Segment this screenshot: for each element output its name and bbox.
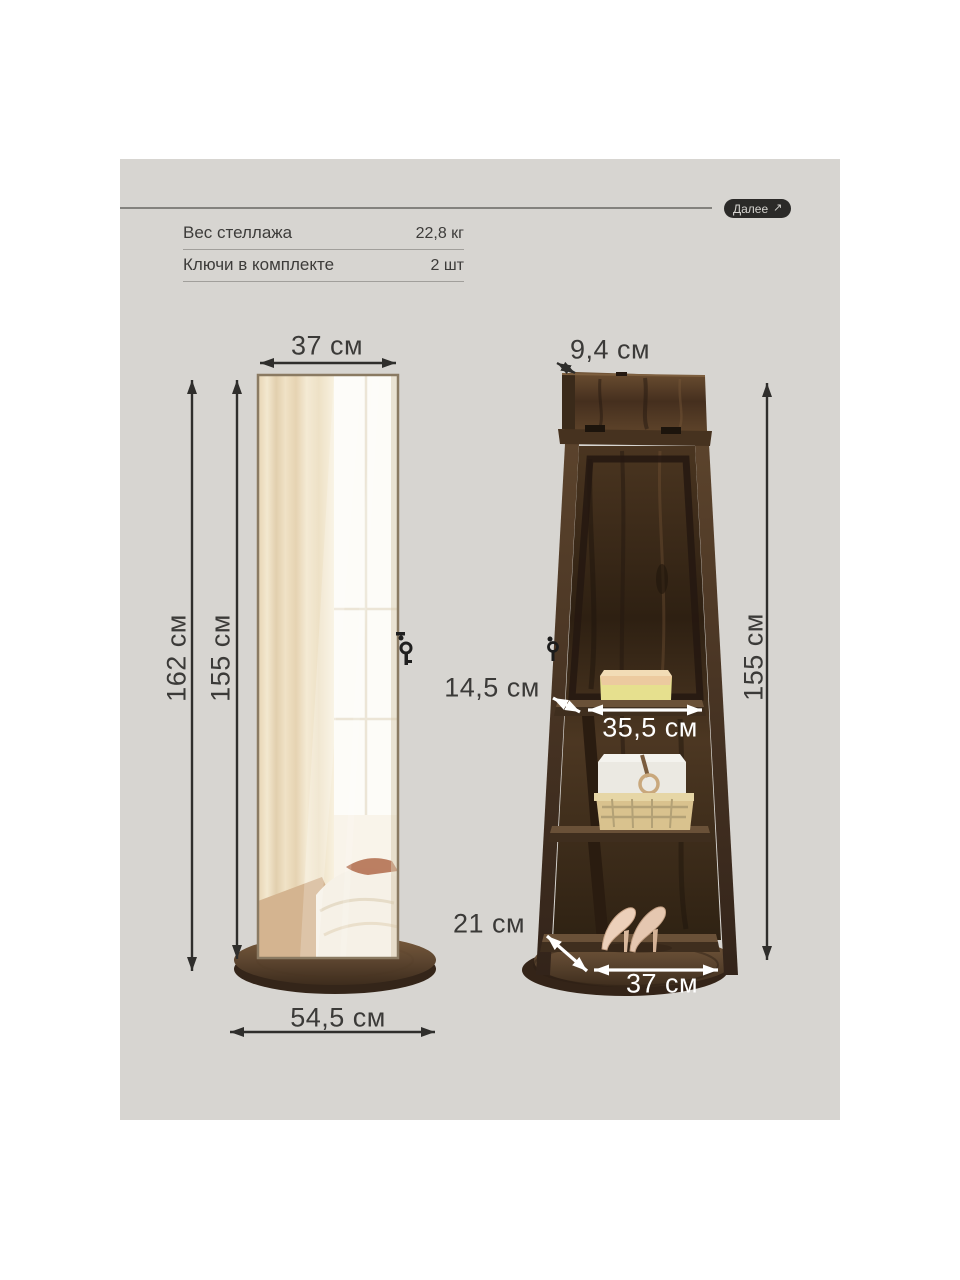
dim-label-front-base-width: 54,5 см xyxy=(290,1003,386,1034)
hinge-right xyxy=(661,427,681,434)
dim-label-back-base-width: 37 см xyxy=(626,969,698,1000)
dim-label-front-height-mirror: 155 см xyxy=(206,614,237,702)
hinge-left xyxy=(585,425,605,432)
dim-label-back-height: 155 см xyxy=(739,613,770,701)
dim-label-back-shelf-width: 35,5 см xyxy=(602,713,698,744)
mirror-front-figure xyxy=(234,375,436,994)
dim-label-front-height-total: 162 см xyxy=(162,614,193,702)
dim-label-back-shelf-depth: 14,5 см xyxy=(444,673,540,704)
top-box xyxy=(558,372,712,446)
info-card: Далее ↗ Вес стеллажа 22,8 кг Ключи в ком… xyxy=(120,159,840,1120)
product-infographic: Далее ↗ Вес стеллажа 22,8 кг Ключи в ком… xyxy=(0,0,960,1280)
mirror-glass xyxy=(258,375,398,958)
hinge-rail xyxy=(558,429,712,446)
yellow-box xyxy=(600,670,672,700)
dim-label-back-base-depth: 21 см xyxy=(453,909,525,940)
white-box xyxy=(598,754,686,798)
dim-label-back-top-depth: 9,4 см xyxy=(570,335,650,366)
cabinet-back-figure xyxy=(522,372,738,996)
dim-label-front-width: 37 см xyxy=(291,331,363,362)
wicker-basket xyxy=(594,793,694,830)
